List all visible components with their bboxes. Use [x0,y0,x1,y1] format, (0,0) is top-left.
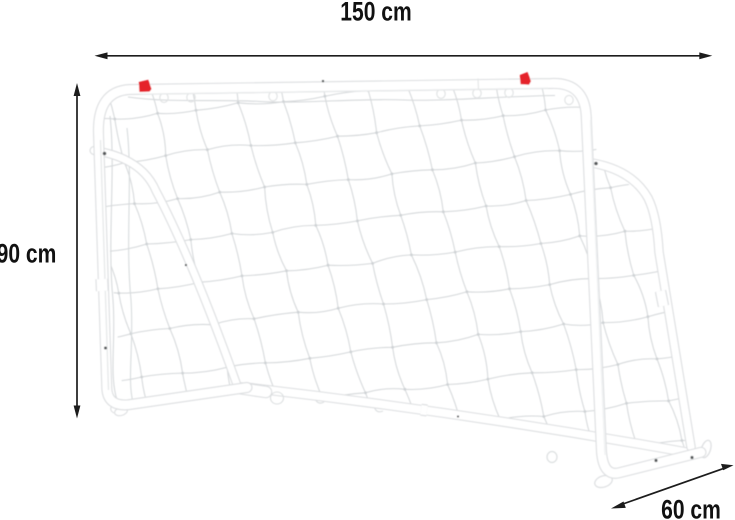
svg-text:90 cm: 90 cm [0,239,56,269]
svg-text:150 cm: 150 cm [340,0,411,27]
svg-text:60 cm: 60 cm [661,495,721,520]
